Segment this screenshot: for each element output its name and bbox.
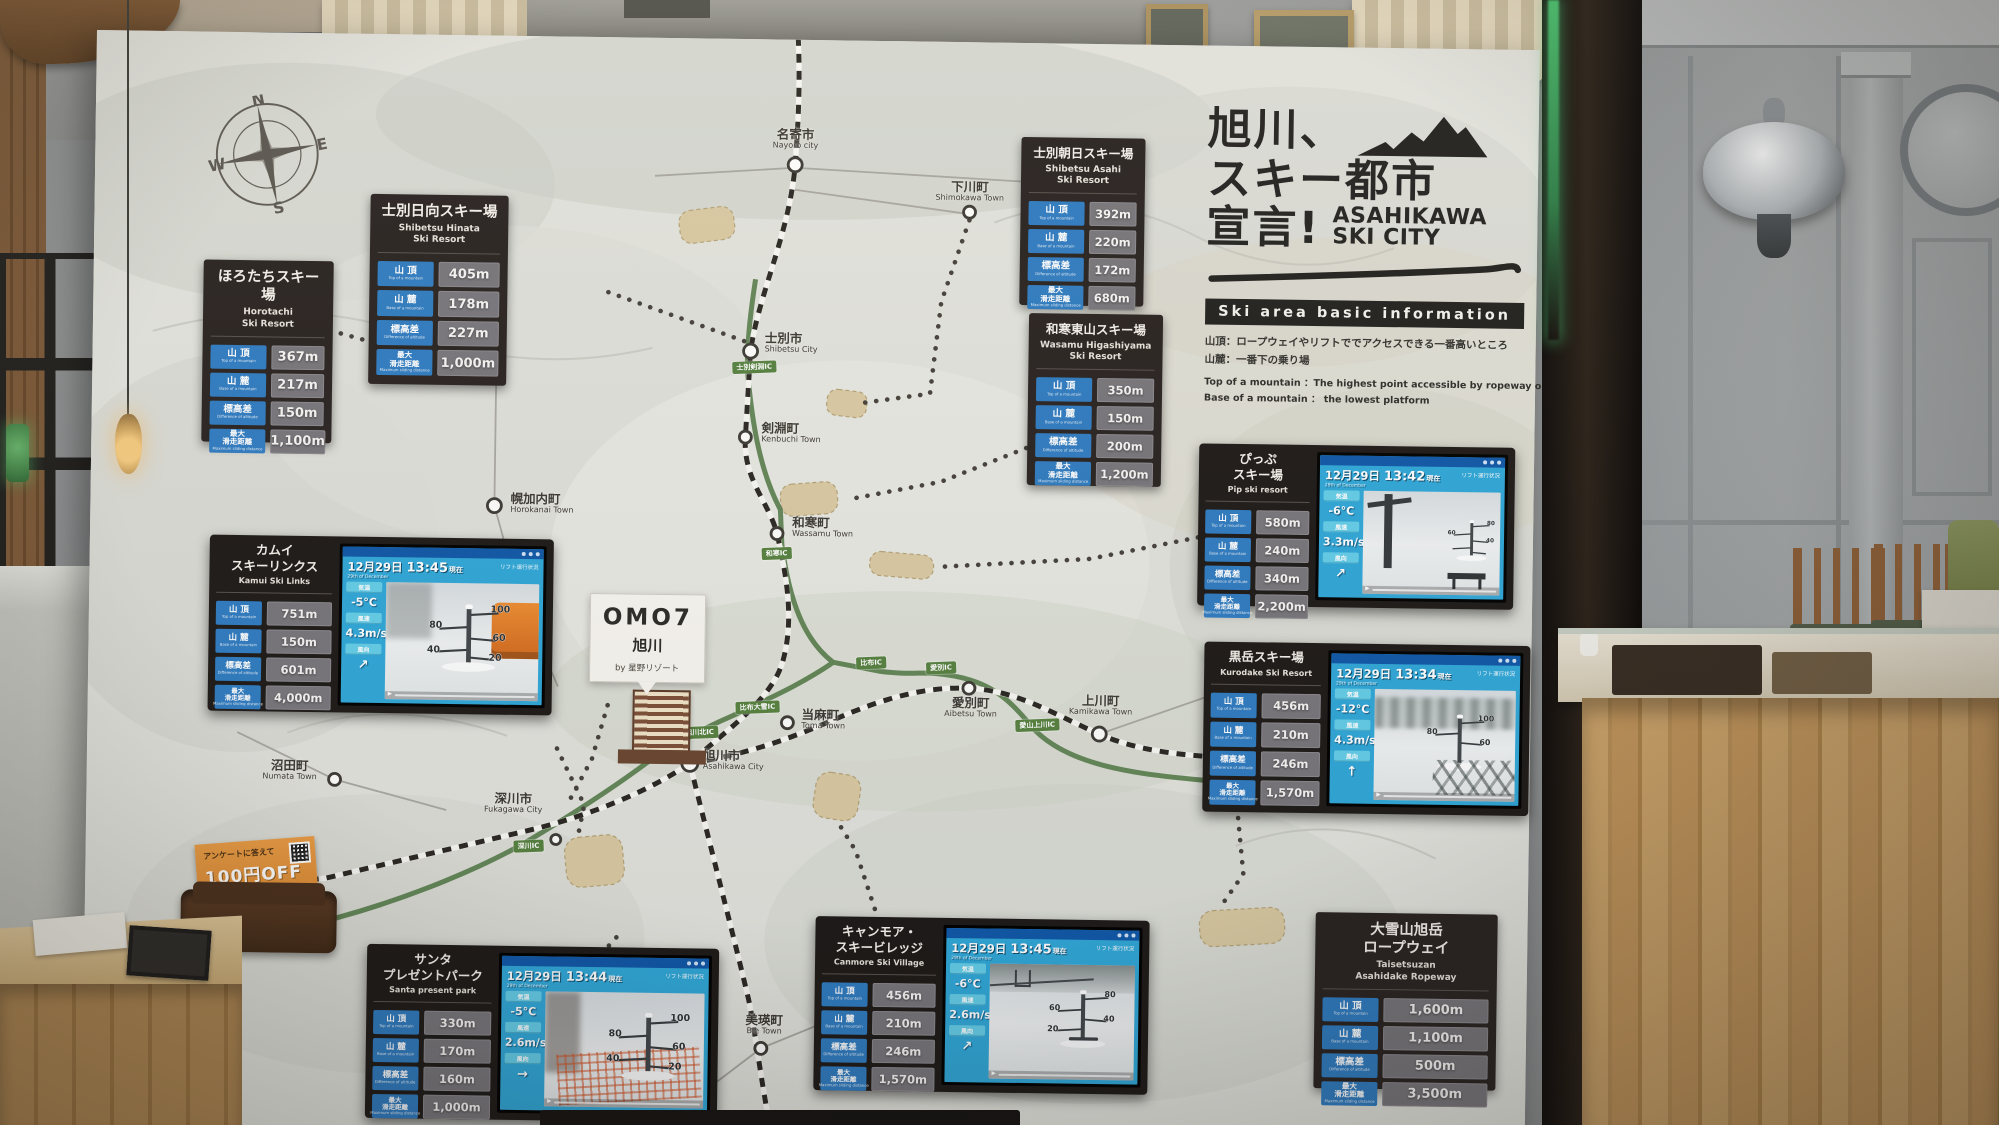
gauge-number: 60	[1480, 737, 1492, 746]
wind-value: 2.6m/s	[949, 1008, 985, 1022]
stat-value: 1,570m	[871, 1067, 934, 1092]
screen-time-suffix: 現在	[1437, 673, 1451, 681]
gauge-number: 80	[429, 619, 443, 630]
stat-row: 山 頂Top of a mountain456m	[821, 982, 935, 1008]
town-en: Kenbuchi Town	[761, 436, 871, 446]
town-label-aibetsu: 愛別町Aibetsu Town	[915, 695, 1025, 720]
pendant-lamp	[115, 414, 142, 474]
panel-kurodake: 黒岳スキー場 Kurodake Ski Resort 山 頂Top of a m…	[1202, 642, 1530, 817]
stat-value: 751m	[267, 602, 332, 627]
stat-value: 1,000m	[437, 350, 498, 376]
stat-label-jp: 標高差	[223, 405, 252, 416]
screen-body: 気温 -6°C 風速 3.3m/s 風向 ↗	[1318, 488, 1505, 600]
stat-label-en: Difference of altitude	[1035, 272, 1076, 277]
stat-label-chip: 山 麓Base of a mountain	[1036, 405, 1092, 430]
stat-label-jp: 最大 滑走距離	[225, 687, 251, 702]
resort-name-jp: キャンモア・ スキービレッジ	[822, 923, 936, 956]
wind-label: 風速	[949, 994, 985, 1006]
panel-shibetsu-asahi: 士別朝日スキー場 Shibetsu Asahi Ski Resort 山 頂To…	[1019, 137, 1145, 307]
stat-row: 山 麓Base of a mountain150m	[215, 629, 331, 655]
stat-label-jp: 山 麓	[228, 634, 248, 644]
stat-row: 標高差Difference of altitude500m	[1322, 1053, 1488, 1079]
temp-label: 気温	[1335, 688, 1371, 700]
wind-value: 2.6m/s	[505, 1036, 541, 1050]
screen-time: 13:44	[566, 970, 608, 986]
stat-label-en: Difference of altitude	[384, 336, 425, 341]
gauge-number: 100	[670, 1013, 690, 1024]
stat-row: 山 頂Top of a mountain330m	[373, 1010, 491, 1036]
video-scrubber: ▶	[544, 1098, 703, 1108]
resort-name-jp: ほろたちスキー場	[211, 268, 325, 306]
resort-name-en: Horotachi Ski Resort	[211, 304, 325, 338]
stat-label-chip: 標高差Difference of altitude	[372, 1066, 418, 1091]
play-icon: ▶	[388, 692, 392, 698]
stat-row: 山 麓Base of a mountain220m	[1028, 229, 1136, 255]
gauge-number: 80	[608, 1028, 622, 1039]
stat-label-jp: 山 麓	[394, 295, 416, 306]
panel-kamui: カムイ スキーリンクス Kamui Ski Links 山 頂Top of a …	[208, 535, 554, 716]
gauge-number: 60	[672, 1041, 686, 1052]
temp-label: 気温	[346, 582, 382, 594]
green-bottle	[6, 424, 29, 482]
stat-label-en: Top of a mountain	[1216, 707, 1250, 712]
ic-badge: 士別剣淵IC	[732, 360, 776, 374]
stat-label-chip: 標高差Difference of altitude	[215, 657, 261, 682]
town-label-kenbuchi: 剣淵町Kenbuchi Town	[761, 421, 871, 446]
note-jp-base: 山麓：一番下の乗り場	[1204, 351, 1538, 371]
webcam-screen: 12月29日 13:44現在29th of December リフト運行状況 気…	[497, 953, 712, 1116]
stat-row: 山 頂Top of a mountain1,600m	[1322, 997, 1488, 1023]
stat-label-jp: 山 麓	[1223, 727, 1243, 737]
ic-badge: 愛山上川IC	[1015, 718, 1059, 732]
lobby-photo: N E S W 旭川、 スキー都市 宣言! ASAHIKAWA SKI CITY…	[0, 0, 1999, 1125]
gauge-number: 80	[1487, 521, 1495, 527]
stat-row: 最大 滑走距離Maximum sliding distance1,570m	[820, 1066, 934, 1092]
screen-sidebar: 気温 -6°C 風速 2.6m/s 風向 ↗	[948, 963, 986, 1078]
town-en: Shibetsu City	[765, 346, 875, 356]
stat-row: 標高差Difference of altitude160m	[372, 1066, 490, 1092]
stat-label-en: Base of a mountain	[1215, 736, 1252, 741]
town-label-numata: 沼田町Numata Town	[245, 758, 335, 782]
stat-label-en: Top of a mountain	[388, 277, 422, 282]
screen-datetime: 12月29日 13:45現在29th of December	[347, 559, 463, 582]
note-jp-top: 山頂：ロープウェイやリフトででアクセスできる一番高いところ	[1205, 333, 1539, 353]
stat-label-jp: 標高差	[1041, 262, 1070, 273]
play-icon: ▶	[1365, 587, 1369, 593]
wall-molding	[1688, 56, 1693, 656]
stat-value: 150m	[270, 401, 323, 426]
stat-label-en: Base of a mountain	[1045, 420, 1082, 425]
stat-value: 367m	[271, 345, 324, 370]
stat-label-jp: 山 麓	[1045, 234, 1067, 245]
temp-value: -12°C	[1335, 702, 1371, 716]
stat-value: 405m	[438, 261, 499, 287]
town-en: Nayoro city	[740, 141, 850, 151]
ic-badge: 和寒IC	[762, 547, 792, 560]
webcam-image: 100 80 60 40 20 ▶	[385, 582, 540, 701]
wind-dir-arrow-icon: ↗	[1322, 566, 1358, 582]
stat-label-chip: 山 麓Base of a mountain	[215, 629, 261, 654]
chair-back	[1793, 548, 1885, 626]
stat-label-chip: 山 頂Top of a mountain	[1028, 201, 1084, 226]
wind-label: 風速	[1323, 521, 1359, 533]
wind-label: 風速	[346, 613, 382, 625]
stat-label-chip: 標高差Difference of altitude	[1035, 433, 1091, 458]
stat-row: 山 頂Top of a mountain367m	[210, 344, 324, 370]
screen-note: リフト運行状況	[1096, 942, 1135, 953]
stat-row: 最大 滑走距離Maximum sliding distance4,000m	[215, 685, 331, 711]
stat-row: 山 頂Top of a mountain350m	[1036, 377, 1154, 403]
stat-value: 160m	[423, 1067, 490, 1092]
stat-label-chip: 最大 滑走距離Maximum sliding distance	[1204, 594, 1250, 619]
board-title: 旭川、 スキー都市 宣言! ASAHIKAWA SKI CITY Ski are…	[1204, 104, 1542, 408]
stat-row: 最大 滑走距離Maximum sliding distance1,570m	[1209, 780, 1319, 807]
gauge-number: 40	[606, 1053, 620, 1064]
stat-label-jp: 最大 滑走距離	[1214, 596, 1240, 611]
stat-label-jp: 標高差	[1049, 438, 1078, 449]
screen-time-suffix: 現在	[1426, 475, 1440, 483]
stat-value: 210m	[1261, 722, 1320, 748]
resort-info: キャンモア・ スキービレッジ Canmore Ski Village 山 頂To…	[820, 923, 936, 1085]
stat-value: 220m	[1089, 230, 1136, 255]
town-label-kamikawa: 上川町Kamikawa Town	[1046, 693, 1156, 718]
stat-label-chip: 山 頂Top of a mountain	[373, 1010, 419, 1035]
resort-name-jp: 士別日向スキー場	[378, 202, 500, 222]
webcam-image: 80 60 40 20 ▶	[988, 964, 1135, 1081]
ski-map-board: N E S W 旭川、 スキー都市 宣言! ASAHIKAWA SKI CITY…	[82, 30, 1540, 1125]
gauge-number: 40	[1104, 1013, 1116, 1023]
resort-name-en: Taisetsuzan Asahidake Ropeway	[1323, 956, 1489, 991]
stat-label-en: Difference of altitude	[1213, 766, 1254, 771]
counter-box	[1772, 652, 1872, 694]
temp-label: 気温	[1324, 490, 1360, 502]
scrubber-track	[1384, 795, 1512, 799]
stat-label-jp: 山 麓	[1218, 543, 1238, 553]
stat-row: 山 頂Top of a mountain751m	[216, 601, 332, 627]
stat-value: 246m	[1261, 751, 1320, 777]
stat-label-en: Base of a mountain	[1331, 1040, 1368, 1045]
ic-badge: 愛別IC	[926, 661, 956, 674]
stat-value: 4,000m	[266, 686, 331, 711]
stat-row: 最大 滑走距離Maximum sliding distance1,000m	[372, 1094, 490, 1120]
screen-time: 13:45	[1010, 942, 1052, 958]
screen-time: 13:45	[406, 560, 448, 576]
stat-row: 最大 滑走距離Maximum sliding distance3,500m	[1321, 1081, 1487, 1107]
stat-label-jp: 山 頂	[1224, 698, 1244, 708]
stat-row: 山 頂Top of a mountain392m	[1028, 201, 1136, 227]
wind-label: 風速	[1334, 719, 1370, 731]
play-icon: ▶	[991, 1072, 995, 1078]
pendant-lamp-cord	[127, 0, 129, 416]
panel-asahidake-ropeway: 大雪山旭岳 ロープウェイ Taisetsuzan Asahidake Ropew…	[1313, 912, 1497, 1091]
stat-value: 340m	[1255, 566, 1308, 591]
wind-value: 3.3m/s	[1323, 535, 1359, 549]
webcam-image: 80 60 40 ▶	[1362, 491, 1500, 596]
wind-dir-label: 風向	[1323, 552, 1359, 564]
resort-name-en: Wasamu Higashiyama Ski Resort	[1036, 337, 1154, 371]
ski-underline-icon	[1206, 256, 1526, 286]
webcam-page: 12月29日 13:42現在29th of December リフト運行状況 気…	[1318, 455, 1505, 600]
stat-label-en: Maximum sliding distance	[370, 1111, 420, 1116]
stat-label-chip: 山 頂Top of a mountain	[216, 601, 262, 626]
screen-note: リフト運行状況	[1477, 667, 1516, 678]
gauge-number: 20	[1047, 1023, 1059, 1033]
screen-date: 12月29日	[347, 560, 402, 575]
chair-rail	[1642, 520, 1999, 525]
stat-value: 580m	[1256, 510, 1309, 535]
wind-dir-arrow-icon: →	[504, 1067, 540, 1083]
stat-value: 1,570m	[1260, 780, 1319, 806]
gauge-number: 60	[1049, 1002, 1061, 1012]
resort-name-jp: 士別朝日スキー場	[1029, 145, 1137, 162]
stat-label-en: Difference of altitude	[1043, 448, 1084, 453]
stat-value: 1,100m	[270, 429, 325, 454]
stat-label-jp: 最大 滑走距離	[389, 352, 419, 369]
town-label-wassamu: 和寒町Wassamu Town	[792, 516, 902, 541]
green-neon-strip	[1548, 0, 1559, 340]
scrubber-track	[999, 1074, 1131, 1078]
ic-badge: 深川IC	[513, 840, 543, 853]
screen-time: 13:34	[1395, 667, 1437, 683]
panel-horotachi: ほろたちスキー場 Horotachi Ski Resort 山 頂Top of …	[201, 260, 334, 444]
resort-name-en: Kurodake Ski Resort	[1211, 664, 1321, 686]
stat-label-jp: 山 頂	[1053, 382, 1075, 393]
stat-label-en: Base of a mountain	[825, 1025, 862, 1030]
webcam-page: 12月29日 13:34現在29th of December リフト運行状況 気…	[1329, 653, 1520, 806]
wind-dir-arrow-icon: ↗	[949, 1039, 985, 1055]
resort-name-jp: サンタ プレゼントパーク	[374, 951, 492, 984]
resort-name-jp: ぴっぷ スキー場	[1206, 451, 1310, 484]
stat-label-jp: 山 頂	[1218, 515, 1238, 525]
title-jp-line2: スキー都市	[1207, 156, 1542, 209]
stat-label-chip: 山 頂Top of a mountain	[377, 261, 433, 287]
stat-label-jp: 山 麓	[1339, 1029, 1361, 1040]
window	[0, 253, 100, 575]
snow-gauge: 100 80 60 40 20	[415, 588, 511, 690]
town-label-shimokawa: 下川町Shimokawa Town	[915, 179, 1025, 204]
town-label-horokanai: 幌加内町Horokanai Town	[510, 492, 620, 517]
stat-row: 最大 滑走距離Maximum sliding distance680m	[1027, 285, 1135, 311]
pilaster-capital	[1841, 52, 1911, 78]
screen-date: 12月29日	[951, 941, 1006, 956]
stat-row: 山 麓Base of a mountain150m	[1036, 405, 1154, 431]
board-bottom-edge	[540, 1110, 1020, 1125]
mountain-logo-icon	[1353, 106, 1504, 160]
screen-body: 気温 -6°C 風速 2.6m/s 風向 ↗	[944, 961, 1139, 1085]
town-en: Numata Town	[245, 773, 335, 783]
gauge-number: 20	[488, 653, 502, 664]
ic-badge: 比布IC	[856, 656, 886, 669]
stat-label-en: Difference of altitude	[217, 416, 258, 421]
gauge-number: 100	[1478, 714, 1495, 723]
stat-value: 350m	[1097, 378, 1154, 403]
chairlift-chair	[1014, 970, 1030, 987]
screen-sidebar: 気温 -5°C 風速 4.3m/s 風向 ↗	[345, 582, 383, 699]
gauge-number: 60	[1447, 530, 1455, 536]
stat-row: 最大 滑走距離Maximum sliding distance1,200m	[1035, 461, 1153, 487]
stat-value: 1,200m	[1096, 462, 1153, 487]
stat-row: 山 頂Top of a mountain580m	[1205, 510, 1309, 535]
screen-sidebar: 気温 -12°C 風速 4.3m/s 風向 ↑	[1333, 688, 1371, 799]
omo7-building-illustration	[632, 690, 691, 753]
stat-row: 標高差Difference of altitude150m	[210, 400, 324, 426]
stat-row: 山 頂Top of a mountain405m	[377, 261, 499, 288]
screen-header: 12月29日 13:45現在29th of December リフト運行状況	[946, 938, 1139, 964]
stat-label-jp: 山 麓	[386, 1043, 406, 1053]
resort-info: カムイ スキーリンクス Kamui Ski Links 山 頂Top of a …	[215, 542, 333, 706]
stat-row: 標高差Difference of altitude601m	[215, 657, 331, 683]
omo7-brand: OMO7	[597, 604, 699, 631]
stat-value: 500m	[1382, 1054, 1487, 1079]
stat-value: 227m	[438, 321, 499, 347]
stat-value: 210m	[872, 1011, 935, 1036]
town-en: Toma Town	[801, 722, 911, 732]
resort-name-en: Kamui Ski Links	[216, 573, 332, 595]
stat-row: 最大 滑走距離Maximum sliding distance1,000m	[376, 349, 498, 376]
ceiling-vent	[624, 0, 710, 18]
stat-label-en: Base of a mountain	[386, 306, 423, 311]
stat-label-en: Top of a mountain	[1047, 393, 1081, 398]
stat-label-jp: 最大 滑走距離	[1219, 783, 1245, 798]
stat-label-en: Top of a mountain	[827, 997, 861, 1002]
stat-label-jp: 最大 滑走距離	[1040, 287, 1070, 304]
wind-value: 4.3m/s	[346, 627, 382, 641]
stat-value: 1,600m	[1383, 998, 1488, 1023]
town-label-bie: 美瑛町Bie Town	[709, 1013, 819, 1038]
webcam-image: 100 80 60 ▶	[1373, 689, 1516, 802]
stat-value: 178m	[438, 291, 499, 317]
stat-label-en: Maximum sliding distance	[213, 702, 263, 707]
stat-label-chip: 標高差Difference of altitude	[821, 1038, 867, 1063]
stat-label-chip: 最大 滑走距離Maximum sliding distance	[209, 428, 265, 453]
title-jp-line3: 宣言!	[1206, 204, 1321, 254]
stat-label-en: Top of a mountain	[1333, 1012, 1367, 1017]
screen-sidebar: 気温 -5°C 風速 2.6m/s 風向 →	[504, 991, 542, 1106]
resort-name-jp: 大雪山旭岳 ロープウェイ	[1323, 920, 1489, 959]
qr-code	[289, 841, 311, 863]
compass-rose: N E S W	[197, 84, 338, 225]
resort-info: ぴっぷ スキー場 Pip ski resort 山 頂Top of a moun…	[1204, 451, 1310, 600]
town-en: Aibetsu Town	[915, 710, 1025, 720]
stat-value: 1,100m	[1383, 1026, 1488, 1051]
ic-badge: 比布大雪IC	[735, 700, 779, 714]
stat-row: 山 頂Top of a mountain456m	[1211, 692, 1321, 719]
stat-label-en: Difference of altitude	[218, 672, 259, 677]
stat-label-chip: 山 麓Base of a mountain	[377, 290, 433, 316]
stat-row: 標高差Difference of altitude227m	[377, 320, 499, 347]
stat-label-chip: 標高差Difference of altitude	[1210, 750, 1256, 776]
stat-label-jp: 山 頂	[386, 1015, 406, 1025]
stat-label-en: Base of a mountain	[1209, 552, 1246, 557]
video-scrubber: ▶	[385, 691, 538, 701]
webcam-page: 12月29日 13:45現在29th of December リフト運行状況 気…	[944, 928, 1139, 1085]
stat-label-jp: 最大 滑走距離	[382, 1097, 408, 1112]
stat-label-jp: 最大 滑走距離	[830, 1069, 856, 1084]
screen-datetime: 12月29日 13:42現在29th of December	[1325, 467, 1441, 490]
wind-dir-arrow-icon: ↗	[345, 658, 381, 674]
menu-tablet	[126, 925, 211, 981]
temp-label: 気温	[505, 991, 541, 1003]
stat-label-chip: 山 頂Top of a mountain	[1036, 377, 1092, 402]
stat-label-en: Top of a mountain	[1211, 524, 1245, 529]
gauge-number: 80	[1427, 726, 1439, 735]
screen-note: リフト運行状況	[1461, 469, 1500, 480]
stat-value: 246m	[872, 1039, 935, 1064]
play-icon: ▶	[547, 1100, 551, 1106]
stat-label-jp: 山 頂	[1339, 1001, 1361, 1012]
stat-label-chip: 標高差Difference of altitude	[1322, 1053, 1378, 1078]
gauge-number: 40	[1486, 538, 1494, 544]
stat-label-jp: 山 頂	[229, 606, 249, 616]
screen-header: 12月29日 13:42現在29th of December リフト運行状況	[1320, 465, 1505, 491]
screen-body: 気温 -12°C 風速 4.3m/s 風向 ↑	[1329, 686, 1520, 806]
omo7-callout: OMO7 旭川 by 星野リゾート	[589, 593, 706, 684]
stat-value: 240m	[1256, 538, 1309, 563]
webcam-screen: 12月29日 13:34現在29th of December リフト運行状況 気…	[1326, 650, 1523, 809]
stat-label-chip: 最大 滑走距離Maximum sliding distance	[1035, 461, 1091, 486]
stat-value: 150m	[1097, 406, 1154, 431]
screen-time: 13:42	[1384, 469, 1426, 485]
screen-note: リフト運行状況	[665, 970, 704, 981]
stat-label-chip: 山 頂Top of a mountain	[821, 982, 867, 1007]
stat-row: 標高差Difference of altitude200m	[1035, 433, 1153, 459]
stat-value: 1,000m	[423, 1095, 490, 1120]
stat-label-chip: 最大 滑走距離Maximum sliding distance	[1209, 780, 1255, 806]
scrubber-track	[1373, 589, 1497, 593]
stat-row: 標高差Difference of altitude246m	[1210, 750, 1320, 777]
stat-value: 200m	[1096, 434, 1153, 459]
stat-label-chip: 最大 滑走距離Maximum sliding distance	[372, 1094, 418, 1119]
resort-info: サンタ プレゼントパーク Santa present park 山 頂Top o…	[372, 951, 492, 1113]
wind-dir-label: 風向	[1334, 750, 1370, 762]
stat-label-jp: 標高差	[1215, 571, 1241, 581]
screen-datetime: 12月29日 13:44現在29th of December	[507, 968, 623, 991]
wind-dir-label: 風向	[949, 1025, 985, 1037]
webcam-screen: 12月29日 13:45現在29th of December リフト運行状況 気…	[338, 543, 547, 708]
stat-label-jp: 標高差	[831, 1043, 857, 1053]
stat-label-en: Difference of altitude	[823, 1053, 864, 1058]
resort-name-jp: 黒岳スキー場	[1211, 649, 1321, 666]
stat-label-en: Base of a mountain	[1037, 244, 1074, 249]
stat-label-en: Maximum sliding distance	[1202, 611, 1252, 616]
stat-value: 456m	[872, 983, 935, 1008]
omo7-city: 旭川	[596, 634, 698, 656]
town-en: Wassamu Town	[792, 530, 902, 540]
stat-label-chip: 最大 滑走距離Maximum sliding distance	[820, 1066, 866, 1091]
stat-label-chip: 最大 滑走距離Maximum sliding distance	[376, 349, 432, 375]
stat-label-en: Maximum sliding distance	[1324, 1099, 1374, 1104]
stat-label-chip: 山 頂Top of a mountain	[1211, 692, 1257, 718]
stat-label-chip: 山 麓Base of a mountain	[1210, 721, 1256, 747]
stat-value: 601m	[266, 658, 331, 683]
stat-label-en: Maximum sliding distance	[1207, 797, 1257, 802]
stat-label-en: Maximum sliding distance	[818, 1083, 868, 1088]
screen-body: 気温 -5°C 風速 4.3m/s 風向 ↗	[341, 579, 544, 705]
screen-time-suffix: 現在	[449, 566, 463, 574]
stat-label-jp: 標高差	[225, 662, 251, 672]
resort-name-en: Shibetsu Hinata Ski Resort	[378, 220, 500, 254]
stat-label-chip: 最大 滑走距離Maximum sliding distance	[1321, 1081, 1377, 1106]
stat-label-chip: 山 麓Base of a mountain	[1028, 229, 1084, 254]
town-en: Asahikawa City	[703, 763, 813, 773]
resort-name-en: Santa present park	[373, 982, 491, 1004]
stat-label-jp: 山 麓	[834, 1015, 854, 1025]
panel-canmore: キャンモア・ スキービレッジ Canmore Ski Village 山 頂To…	[813, 916, 1149, 1095]
scrubber-track	[395, 694, 535, 698]
snow-gauge: 80 60 40 20	[1038, 970, 1121, 1070]
screen-header: 12月29日 13:44現在29th of December リフト運行状況	[502, 966, 709, 992]
resort-name-en: Shibetsu Asahi Ski Resort	[1029, 161, 1137, 195]
